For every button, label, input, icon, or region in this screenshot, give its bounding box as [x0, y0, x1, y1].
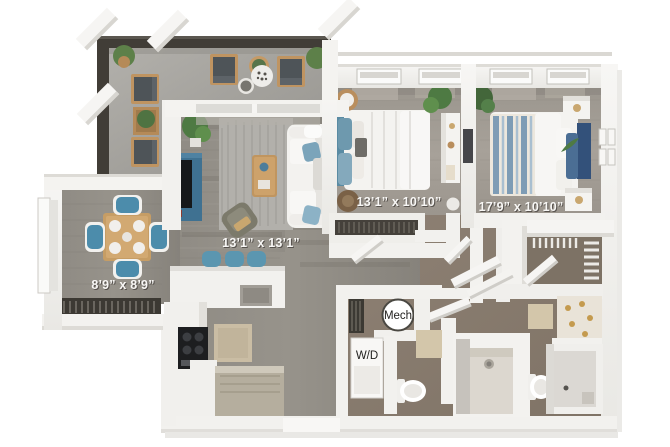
svg-text:13’1” x 10’10”: 13’1” x 10’10”	[357, 195, 442, 209]
svg-text:Mech: Mech	[384, 310, 412, 322]
svg-text:8’9” x 8’9”: 8’9” x 8’9”	[91, 278, 154, 292]
svg-text:W/D: W/D	[356, 350, 378, 362]
svg-text:17’9” x 10’10”: 17’9” x 10’10”	[479, 200, 564, 214]
svg-text:13’1” x 13’1”: 13’1” x 13’1”	[222, 236, 300, 250]
